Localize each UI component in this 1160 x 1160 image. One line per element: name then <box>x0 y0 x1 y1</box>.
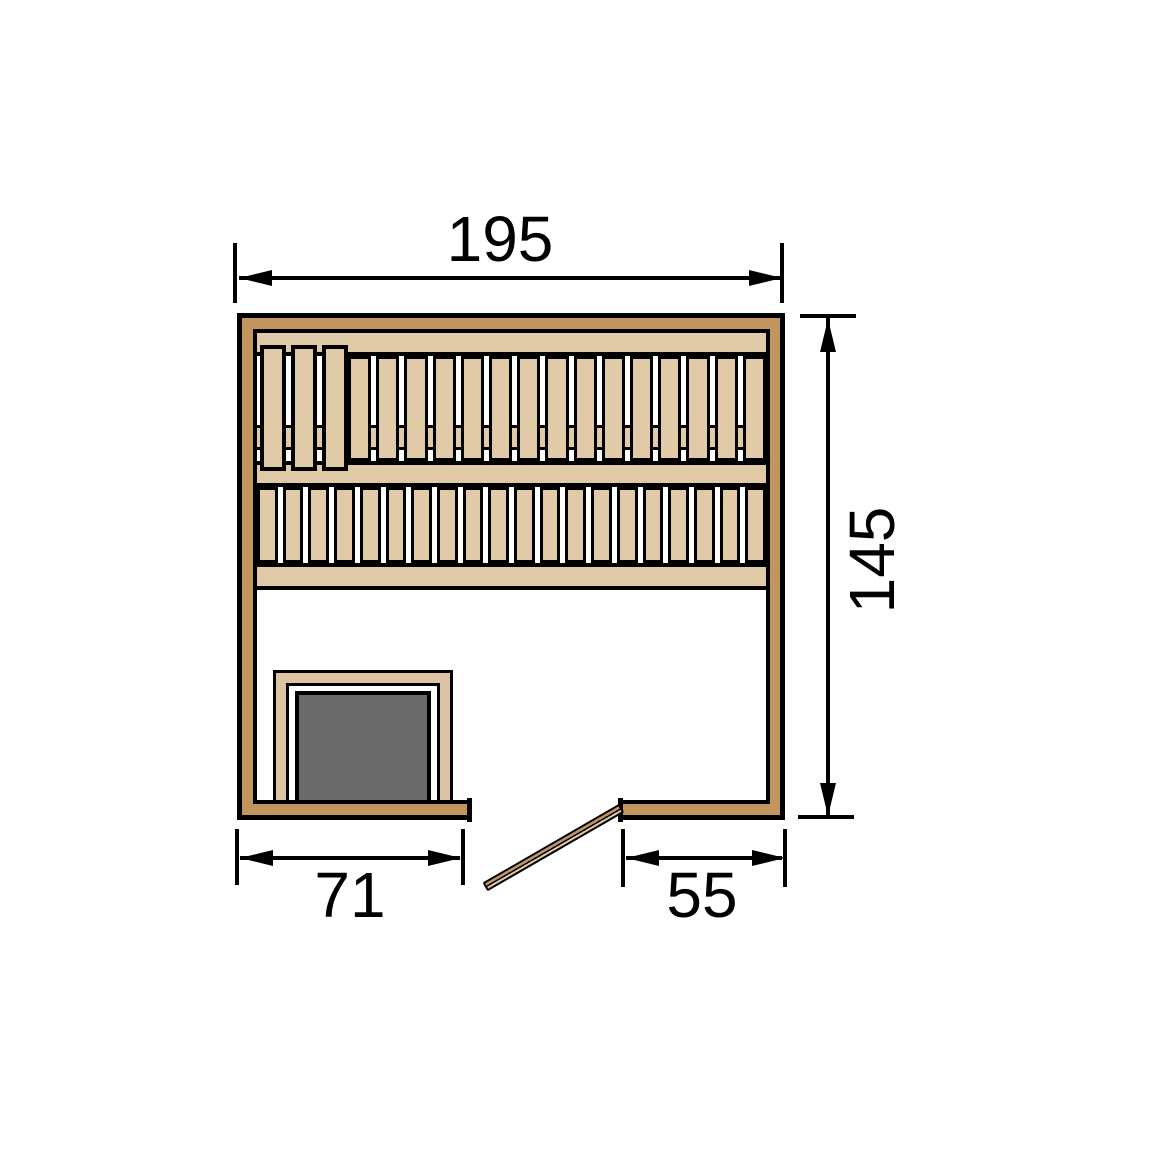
bench-slat <box>360 487 381 563</box>
bench-slat <box>630 356 653 461</box>
bench-slat <box>283 487 304 563</box>
dimension-line-total-depth <box>826 318 830 817</box>
bench-slat <box>437 487 458 563</box>
backrest-board <box>260 345 286 471</box>
bench-top <box>253 329 770 487</box>
bench-top-slats <box>348 356 766 461</box>
bench-slat <box>308 487 329 563</box>
bench-slat <box>602 356 625 461</box>
dimension-label-heater-side: 71 <box>250 860 450 930</box>
backrest-boards <box>260 345 348 471</box>
bench-slat <box>565 487 586 563</box>
bench-slat <box>334 487 355 563</box>
bench-slat <box>488 487 509 563</box>
bench-slat <box>489 356 512 461</box>
dimension-tick-left <box>235 829 239 885</box>
bench-slat <box>720 487 741 563</box>
bench-slat <box>743 356 766 461</box>
bench-front-slats <box>257 487 766 563</box>
bench-slat <box>433 356 456 461</box>
bench-slat <box>617 487 638 563</box>
arrowhead-right-icon <box>428 850 461 866</box>
bench-slat <box>745 487 766 563</box>
backrest-board <box>291 345 317 471</box>
backrest-board <box>322 345 348 471</box>
bench-slat <box>658 356 681 461</box>
sauna-floor-plan-diagram: 195 145 71 55 <box>0 0 1160 1160</box>
dimension-line-total-width <box>239 276 782 280</box>
bench-slat <box>517 356 540 461</box>
bench-slat <box>545 356 568 461</box>
bench-slat <box>540 487 561 563</box>
arrowhead-right-icon <box>749 270 782 286</box>
bench-slat <box>591 487 612 563</box>
bench-slat <box>411 487 432 563</box>
bench-slat <box>694 487 715 563</box>
arrowhead-right-icon <box>752 850 785 866</box>
bench-slat <box>376 356 399 461</box>
bench-slat <box>514 487 535 563</box>
bench-slat <box>463 487 484 563</box>
bench-front-slat-row <box>257 487 766 567</box>
bench-slat <box>686 356 709 461</box>
dimension-tick-left <box>233 243 237 303</box>
dimension-tick-right <box>461 829 465 885</box>
dimension-tick-left <box>621 829 625 887</box>
bench-slat <box>668 487 689 563</box>
arrowhead-left-icon <box>626 850 659 866</box>
bench-slat <box>257 487 278 563</box>
arrowhead-down-icon <box>820 783 836 816</box>
bench-slat <box>574 356 597 461</box>
dimension-line-heater-side <box>240 856 460 860</box>
arrowhead-left-icon <box>239 270 272 286</box>
bench-slat <box>643 487 664 563</box>
bench-slat <box>715 356 738 461</box>
dimension-label-total-depth: 145 <box>837 460 907 660</box>
dimension-label-total-width: 195 <box>350 204 650 274</box>
bench-slat <box>461 356 484 461</box>
bench-slat <box>404 356 427 461</box>
bench-slat <box>386 487 407 563</box>
bench-slat <box>348 356 371 461</box>
arrowhead-up-icon <box>820 319 836 352</box>
dimension-label-entry-side: 55 <box>602 860 802 930</box>
arrowhead-left-icon <box>240 850 273 866</box>
bench-front <box>253 483 770 590</box>
heater <box>295 691 431 804</box>
